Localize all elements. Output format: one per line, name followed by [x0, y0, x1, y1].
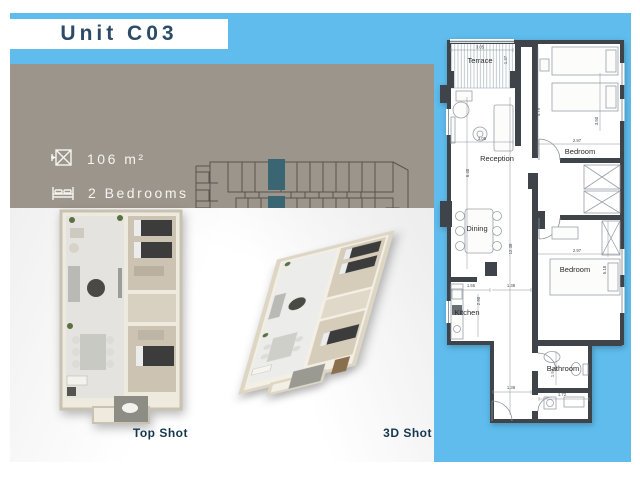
room-label-bedroom2: Bedroom: [560, 265, 590, 274]
dimension-label: 12.38: [508, 243, 513, 254]
dimension-label: 3.50: [594, 116, 599, 125]
room-label-bedroom1: Bedroom: [565, 147, 595, 156]
dimension-label: 2.90: [476, 296, 481, 305]
room-label-kitchen: Kitchen: [454, 308, 479, 317]
unit-sheet-page: Unit C03 106 m²: [0, 0, 640, 480]
dimension-label: 1.94: [550, 368, 555, 377]
page-title: Unit C03: [60, 22, 177, 46]
title-box: Unit C03: [10, 19, 228, 49]
info-panel: 106 m² 2 Bedrooms: [10, 64, 434, 208]
dimension-label: 1.38: [507, 385, 516, 390]
floorplan: Terrace Reception Dining Kitchen Bathroo…: [434, 13, 631, 462]
room-label-reception: Reception: [480, 154, 514, 163]
dimension-label: 1.37: [503, 55, 508, 64]
area-icon: [50, 146, 75, 171]
threedshot-render: [192, 212, 436, 424]
threedshot-label: 3D Shot: [366, 426, 432, 440]
spec-bedrooms: 2 Bedrooms: [50, 182, 188, 204]
room-label-terrace: Terrace: [467, 56, 492, 65]
dimension-label: 5.18: [602, 265, 607, 274]
bed-icon: [50, 182, 76, 204]
dimension-label: 4.79: [536, 107, 541, 116]
dimension-label: 3.05: [478, 136, 487, 141]
terrace-area: [451, 44, 513, 88]
topshot-render: [58, 208, 186, 426]
dimension-label: 1.38: [507, 283, 516, 288]
keyplan-highlight-top: [268, 159, 285, 190]
spec-area: 106 m²: [50, 146, 188, 171]
spec-area-label: 106 m²: [87, 151, 146, 167]
spec-bedrooms-label: 2 Bedrooms: [88, 185, 188, 201]
dimension-label: 2.97: [573, 138, 582, 143]
topshot-label: Top Shot: [118, 426, 188, 440]
dimension-label: 1.55: [467, 283, 476, 288]
dimension-label: 3.05: [476, 45, 485, 50]
dimension-label: 1.72: [558, 392, 567, 397]
dimension-label: 6.40: [465, 168, 470, 177]
dimension-label: 2.97: [573, 248, 582, 253]
room-label-dining: Dining: [466, 224, 487, 233]
